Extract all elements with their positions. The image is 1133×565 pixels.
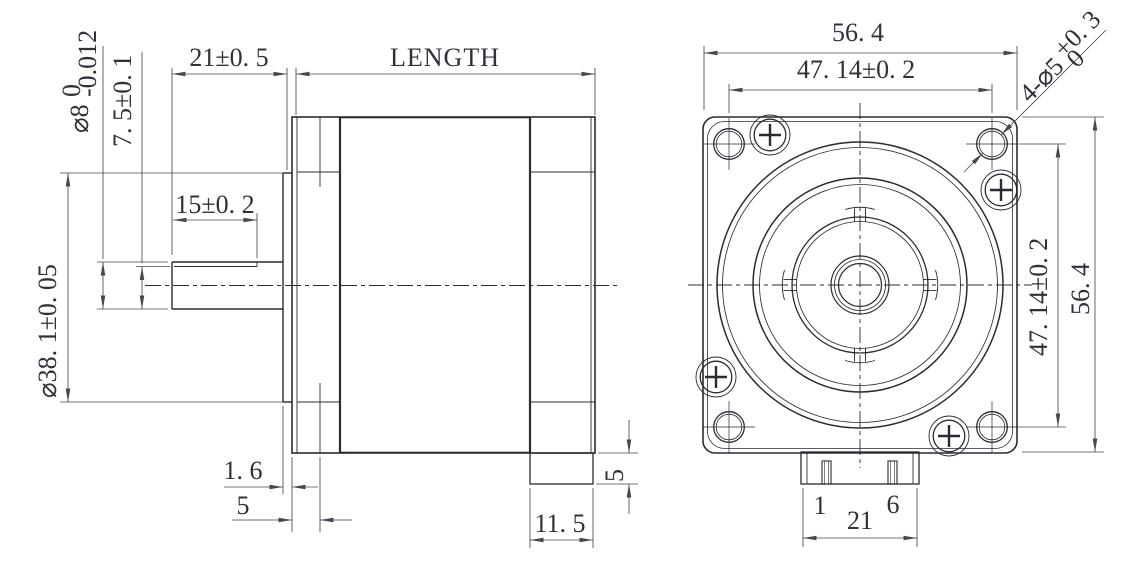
- pilot-boss-outline: [283, 173, 292, 402]
- flange-width-dimension: 56. 4: [832, 18, 884, 47]
- screw-head: [981, 170, 1021, 210]
- mounting-holes-callout: 4-⌀5 +0. 3 0: [1008, 5, 1117, 114]
- screw-head: [696, 357, 736, 397]
- pilot-depth-dimension: 1. 6: [224, 456, 263, 485]
- svg-text:56. 4: 56. 4: [1066, 263, 1095, 315]
- body-length-dimension: LENGTH: [390, 43, 500, 72]
- front-view: [688, 103, 1032, 484]
- svg-text:⌀38. 1±0. 05: ⌀38. 1±0. 05: [33, 264, 62, 398]
- svg-text:47. 14±0. 2: 47. 14±0. 2: [1024, 238, 1053, 356]
- pilot-diameter-dimension: ⌀38. 1±0. 05: [33, 264, 62, 398]
- connector-pin: [888, 461, 897, 484]
- connector-pin: [822, 461, 831, 484]
- technical-drawing: 21±0. 5 LENGTH 15±0. 2 ⌀8 0 -0.012 7. 5±…: [0, 0, 1133, 565]
- lamination-stack: [340, 117, 530, 453]
- mounting-hole: [966, 401, 1018, 453]
- hole-spacing-vertical-dimension: 47. 14±0. 2: [1024, 238, 1053, 356]
- shaft-length-dimension: 21±0. 5: [189, 43, 268, 72]
- connector-side-outline: [530, 453, 593, 484]
- shaft-flat-height-dimension: 7. 5±0. 1: [108, 55, 137, 147]
- shaft-diameter-dimension: ⌀8 0 -0.012: [57, 30, 102, 133]
- front-plate-chamfer-dimension: 5: [237, 491, 250, 520]
- rear-cap-length-dimension: 11. 5: [534, 509, 585, 538]
- connector-width-dimension: 21: [847, 506, 873, 535]
- svg-text:-0.012: -0.012: [73, 30, 102, 97]
- flange-height-dimension: 56. 4: [1066, 263, 1095, 315]
- svg-text:7. 5±0. 1: 7. 5±0. 1: [108, 55, 137, 147]
- svg-text:5: 5: [600, 469, 629, 482]
- screw-head: [929, 416, 969, 456]
- front-view-dimensions: 56. 4 47. 14±0. 2 47. 14±0. 2 56. 4 4-⌀5…: [704, 5, 1118, 547]
- flat-length-dimension: 15±0. 2: [175, 190, 254, 219]
- connector-depth-dimension: 5: [600, 469, 629, 482]
- pin-first-label: 1: [814, 491, 827, 520]
- svg-text:4-⌀5: 4-⌀5: [1013, 52, 1069, 108]
- side-view-dimensions: 21±0. 5 LENGTH 15±0. 2 ⌀8 0 -0.012 7. 5±…: [33, 30, 638, 548]
- mounting-hole: [703, 401, 755, 453]
- motor-body-outline: [292, 117, 595, 453]
- pin-last-label: 6: [887, 490, 900, 519]
- svg-text:⌀8: ⌀8: [65, 104, 94, 133]
- mounting-hole: [703, 118, 755, 170]
- screw-head: [750, 115, 790, 155]
- side-view: [145, 117, 617, 484]
- hole-spacing-horizontal-dimension: 47. 14±0. 2: [797, 55, 915, 84]
